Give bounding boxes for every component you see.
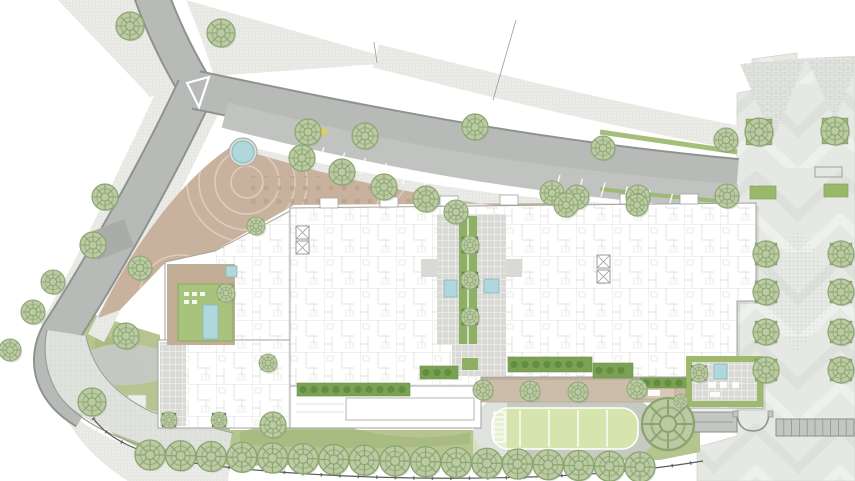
tree-pale bbox=[503, 449, 534, 480]
tree-canopy-icon bbox=[753, 241, 779, 267]
hedge-bush bbox=[532, 361, 539, 368]
tree-canopy-icon bbox=[821, 117, 849, 145]
hedge-bush bbox=[510, 361, 517, 368]
tree-canopy-icon bbox=[533, 450, 563, 480]
tree-canopy-icon bbox=[568, 382, 588, 402]
tree-pale bbox=[258, 443, 289, 474]
hedge-bush bbox=[376, 386, 383, 393]
hedge-bush bbox=[543, 361, 550, 368]
tree bbox=[92, 184, 119, 211]
tree-canopy-icon bbox=[828, 357, 854, 383]
tree-canopy-icon bbox=[461, 271, 479, 289]
tree-pale bbox=[166, 441, 197, 472]
tree bbox=[207, 19, 236, 48]
courtyard-stem-grid bbox=[452, 345, 506, 376]
tree-canopy-icon bbox=[441, 448, 471, 478]
tree-canopy-icon bbox=[753, 279, 779, 305]
tree-canopy-icon bbox=[113, 323, 139, 349]
hedge-bush bbox=[398, 386, 405, 393]
tree-canopy-icon bbox=[80, 232, 106, 258]
tree-pale bbox=[196, 442, 227, 473]
tree-canopy-icon bbox=[828, 241, 854, 267]
tree-canopy-icon bbox=[260, 412, 286, 438]
tree-canopy-icon bbox=[166, 441, 196, 471]
hedge-bush bbox=[299, 386, 306, 393]
planting-bed bbox=[824, 184, 848, 197]
tree-canopy-icon bbox=[564, 451, 594, 481]
tree-canopy-icon bbox=[128, 256, 152, 280]
hedge-bush bbox=[433, 369, 440, 376]
tree-pale bbox=[472, 448, 503, 479]
sports-area bbox=[473, 399, 656, 457]
tree-canopy-icon bbox=[753, 357, 779, 383]
tree-canopy-icon bbox=[258, 443, 288, 473]
tree-canopy-icon bbox=[78, 388, 106, 416]
tree-canopy-icon bbox=[21, 300, 45, 324]
hedge-bush bbox=[310, 386, 317, 393]
tree-canopy-icon bbox=[674, 394, 688, 408]
hedge-bush bbox=[521, 361, 528, 368]
tree-canopy-icon bbox=[715, 184, 739, 208]
tree-canopy-icon bbox=[295, 119, 321, 145]
tree bbox=[821, 117, 850, 146]
tree-canopy-icon bbox=[828, 279, 854, 305]
tree-canopy-icon bbox=[411, 447, 441, 477]
hedge-bush bbox=[387, 386, 394, 393]
hedge-bush bbox=[664, 379, 671, 386]
tree-canopy-icon bbox=[554, 193, 578, 217]
tree-canopy-icon bbox=[217, 284, 235, 302]
tree-canopy-icon bbox=[371, 174, 397, 200]
tree-canopy-icon bbox=[714, 128, 738, 152]
hedge-bush bbox=[365, 386, 372, 393]
tree-canopy-icon bbox=[319, 445, 349, 475]
tree-canopy-icon bbox=[444, 200, 468, 224]
gate-post bbox=[733, 411, 738, 417]
tree-pale bbox=[625, 452, 656, 481]
tree-canopy-icon bbox=[207, 19, 235, 47]
site-plan-canvas bbox=[0, 0, 855, 481]
tree-pale bbox=[135, 440, 166, 471]
tree-canopy-icon bbox=[211, 412, 227, 428]
tree-canopy-icon bbox=[196, 442, 226, 472]
tree-pale bbox=[411, 447, 442, 478]
hedge-bush bbox=[653, 379, 660, 386]
tree-canopy-icon bbox=[135, 440, 165, 470]
tree bbox=[0, 339, 22, 363]
pool bbox=[714, 364, 727, 379]
tree-canopy-icon bbox=[289, 145, 315, 171]
tree-canopy-icon bbox=[92, 184, 118, 210]
hedge-bush bbox=[606, 367, 613, 374]
tree-pale bbox=[319, 445, 350, 476]
tree-canopy-icon bbox=[591, 136, 615, 160]
tree-canopy-icon bbox=[503, 449, 533, 479]
hedge-bush bbox=[675, 379, 682, 386]
courtyard-arm-west bbox=[421, 259, 437, 277]
tree-canopy-icon bbox=[0, 339, 21, 361]
tree-canopy-icon bbox=[753, 319, 779, 345]
pool bbox=[484, 279, 499, 293]
pool bbox=[203, 305, 218, 339]
hedge-bush bbox=[554, 361, 561, 368]
tree bbox=[745, 118, 774, 147]
tree-pale bbox=[380, 446, 411, 477]
tree-pale bbox=[349, 445, 380, 476]
hedge-bush bbox=[444, 369, 451, 376]
tree-canopy-icon bbox=[259, 354, 277, 372]
tree-pale bbox=[441, 448, 472, 479]
tree-canopy-icon bbox=[473, 380, 493, 400]
hedge-bush bbox=[321, 386, 328, 393]
site-plan-drawing bbox=[0, 0, 855, 481]
tree-canopy-icon bbox=[626, 194, 648, 216]
tree-canopy-icon bbox=[380, 446, 410, 476]
tree-canopy-icon bbox=[161, 412, 177, 428]
tree-canopy-icon bbox=[352, 123, 378, 149]
hedge-bush bbox=[354, 386, 361, 393]
hedge-bush bbox=[595, 367, 602, 374]
tree-canopy-icon bbox=[627, 379, 647, 399]
pool bbox=[226, 266, 237, 277]
hedge-bush bbox=[332, 386, 339, 393]
gate-post bbox=[768, 411, 773, 417]
tree-canopy-icon bbox=[116, 12, 144, 40]
tree-canopy-icon bbox=[288, 444, 318, 474]
tree-canopy-icon bbox=[349, 445, 379, 475]
tree-canopy-icon bbox=[413, 186, 439, 212]
hedge-bush bbox=[565, 361, 572, 368]
tree-canopy-icon bbox=[462, 114, 488, 140]
tree-canopy-icon bbox=[472, 448, 502, 478]
fountain-basin bbox=[232, 141, 254, 163]
hedge-bush bbox=[343, 386, 350, 393]
courtyard-stem-green bbox=[462, 358, 478, 370]
tree-canopy-icon bbox=[594, 451, 624, 481]
hedge-bush bbox=[576, 361, 583, 368]
tree bbox=[21, 300, 46, 325]
tree-canopy-icon bbox=[41, 270, 65, 294]
tree-pale bbox=[533, 450, 564, 481]
tree-canopy-icon bbox=[247, 217, 265, 235]
tree-canopy-icon bbox=[690, 364, 708, 382]
pool bbox=[444, 280, 457, 297]
courtyard-arm-east bbox=[506, 259, 522, 277]
planting-bed bbox=[750, 186, 776, 199]
tree-canopy-icon bbox=[461, 308, 479, 326]
tree-canopy-icon bbox=[625, 452, 655, 481]
tree-canopy-icon bbox=[828, 319, 854, 345]
tree bbox=[116, 12, 145, 41]
tree-canopy-icon bbox=[745, 118, 773, 146]
sports-field bbox=[492, 408, 638, 449]
tree bbox=[41, 270, 66, 295]
hedge-bush bbox=[617, 367, 624, 374]
tree-pale bbox=[594, 451, 625, 481]
tree-pale bbox=[564, 451, 595, 481]
hedge-bush bbox=[422, 369, 429, 376]
tree-canopy-icon bbox=[329, 159, 355, 185]
tree-pale bbox=[227, 442, 258, 473]
tree-canopy-icon bbox=[461, 236, 479, 254]
tree bbox=[78, 388, 107, 417]
tree-canopy-icon bbox=[520, 381, 540, 401]
tree-pale bbox=[288, 444, 319, 475]
tree-canopy-icon bbox=[227, 442, 257, 472]
